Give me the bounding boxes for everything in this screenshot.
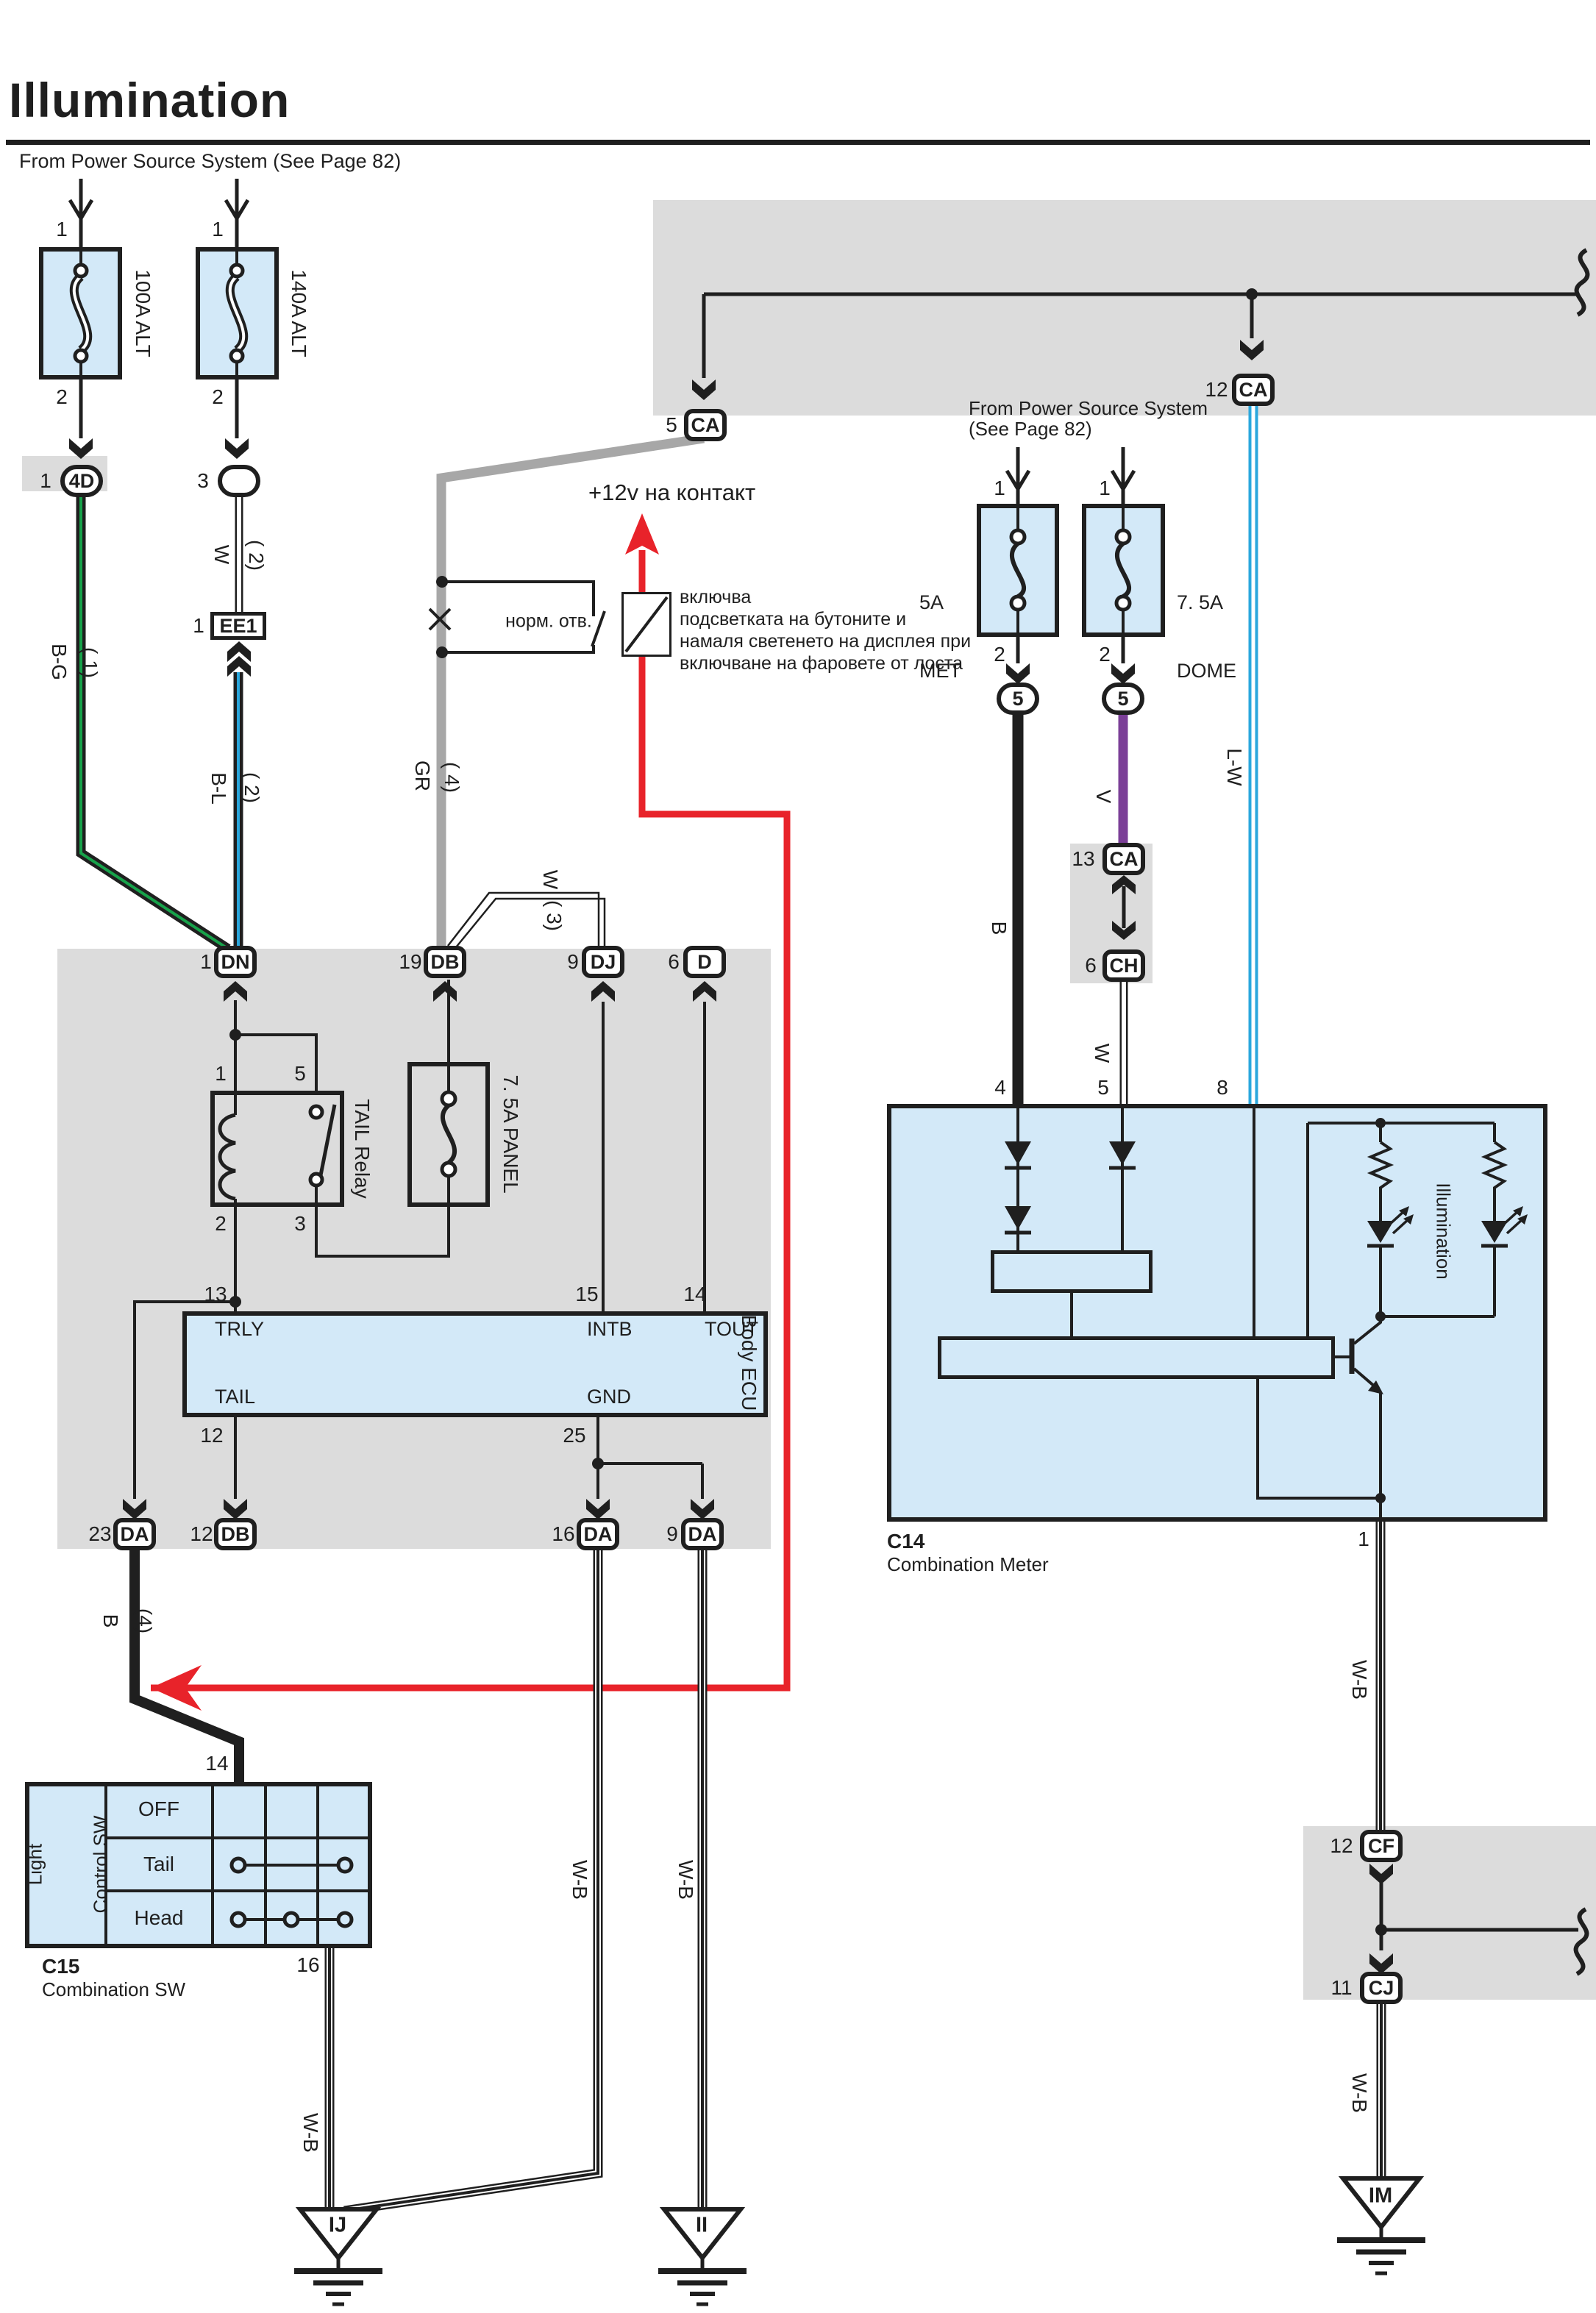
pin: 12 [1330, 1834, 1353, 1858]
wire-label: W-B [674, 1860, 697, 1900]
pin: 1 [193, 614, 204, 638]
ecu-gnd: GND [587, 1386, 631, 1408]
pin: 15 [575, 1283, 598, 1306]
connector-ca12-code: CA [1239, 379, 1268, 402]
connector-db-code: DB [431, 951, 460, 974]
c15-name: Combination SW [42, 1978, 185, 2001]
top-harness-line [704, 250, 1587, 378]
ecu-bottom-wiring [235, 1417, 702, 1499]
wire-label: W-B [1347, 1660, 1371, 1700]
ground-im-label: IM [1369, 2184, 1392, 2209]
pin: 8 [1216, 1076, 1228, 1100]
c15-side-line1: Light [24, 1816, 46, 1914]
pin: 2 [215, 1212, 227, 1236]
wire-label: W-B [299, 2113, 322, 2153]
c14-name: Combination Meter [887, 1553, 1049, 1576]
pin: 4 [994, 1076, 1006, 1100]
pin: 14 [683, 1283, 706, 1306]
connector-cf12: CF [1360, 1830, 1403, 1862]
fuse-dome-line1: 7. 5A [1177, 591, 1236, 614]
c14-id: C14 [887, 1530, 925, 1553]
power-note-line1: From Power Source System [969, 397, 1208, 420]
wire-label: ( 2) [240, 772, 263, 803]
connector-5-dome-code: 5 [1117, 688, 1128, 710]
annotation-line1: включва [680, 587, 751, 608]
fusible-link-100a-symbol [70, 179, 92, 438]
connector-ch6-code: CH [1110, 955, 1139, 977]
wire-label: (4) [132, 1608, 156, 1633]
pin: 25 [563, 1424, 585, 1447]
connector-dn: DN [214, 946, 257, 978]
fuse-dome-line2: DOME [1177, 660, 1236, 683]
pin: 1 [40, 469, 51, 493]
panel-fuse-label: 7. 5A PANEL [499, 1074, 522, 1193]
pin: 16 [552, 1522, 574, 1546]
wire-label: L-W [1222, 748, 1246, 785]
pin: 6 [668, 950, 680, 974]
c14-illumination-label: Illumination [1432, 1183, 1455, 1280]
connector-ca13: CA [1102, 843, 1145, 875]
fuse-panel-symbol [442, 980, 455, 1207]
pin: 12 [200, 1424, 223, 1447]
fuse-label-140a: 140A ALT [287, 269, 310, 357]
relay-wiring [135, 1000, 449, 1499]
connector-cf12-code: CF [1368, 1835, 1394, 1858]
wire-label: B-G [47, 644, 71, 680]
wire-label: ( 1) [78, 647, 101, 678]
connector-db: DB [424, 946, 466, 978]
wire-label: B [99, 1614, 122, 1628]
connector-da23-code: DA [121, 1523, 149, 1546]
connector-5-dome: 5 [1102, 683, 1144, 715]
subtitle: From Power Source System (See Page 82) [19, 150, 401, 173]
wiring-diagram-page: EE1 [0, 0, 1596, 2313]
pin: 3 [294, 1212, 306, 1236]
connector-ch6: CH [1102, 949, 1145, 982]
wire-gr [441, 438, 704, 947]
normally-open-label: норм. отв. [505, 611, 592, 632]
wire-label: B-L [207, 772, 230, 805]
connector-ca13-code: CA [1110, 848, 1139, 871]
c15-row-tail: Tail [143, 1853, 174, 1876]
pin: 12 [190, 1522, 213, 1546]
pin: 2 [56, 385, 68, 409]
connector-da16: DA [577, 1518, 619, 1550]
c15-row-off: OFF [138, 1797, 179, 1821]
cf-cj-wiring [1375, 1880, 1586, 1974]
c15-side-label: Light Control SW [0, 1816, 157, 1914]
relay-label: TAIL Relay [350, 1099, 374, 1198]
fuse-label-100a: 100A ALT [131, 269, 154, 357]
ground-ij-label: IJ [329, 2214, 346, 2238]
pin: 6 [1085, 954, 1097, 977]
pin: 23 [88, 1522, 111, 1546]
ground-ii-label: II [696, 2214, 708, 2238]
wire-bg [81, 496, 228, 949]
pin: 3 [197, 469, 209, 493]
pin: 1 [56, 218, 68, 241]
connector-4d-code: 4D [69, 470, 95, 493]
pin: 11 [1330, 1976, 1352, 2000]
pin: 12 [1205, 378, 1228, 402]
fuse-label-met: 5A MET [919, 546, 961, 728]
fuse-met-line2: MET [919, 660, 961, 683]
wire-label: W [1090, 1044, 1114, 1063]
pin: 1 [994, 477, 1005, 500]
connector-5-met-code: 5 [1012, 688, 1023, 710]
wire-w3 [448, 893, 605, 949]
c15-id: C15 [42, 1955, 79, 1978]
pin: 13 [204, 1283, 227, 1306]
fuse-dome-symbol [1112, 447, 1134, 663]
pin: 2 [1099, 643, 1111, 666]
pin: 14 [205, 1752, 228, 1775]
connector-ca5: CA [684, 409, 727, 441]
connector-da9-code: DA [688, 1523, 717, 1546]
pin: 1 [1099, 477, 1111, 500]
connector-cj11-code: CJ [1369, 1977, 1394, 2000]
pin: 2 [994, 643, 1005, 666]
wire-b4 [135, 1519, 239, 1782]
pin: 16 [296, 1953, 319, 1977]
wire-label: W-B [568, 1860, 591, 1900]
ee1-label: EE1 [219, 615, 257, 638]
ca13-ch6-link [1112, 875, 1136, 940]
pin: 1 [1358, 1528, 1369, 1551]
connector-db12-code: DB [221, 1523, 250, 1546]
pin: 1 [212, 218, 224, 241]
connector-ca5-code: CA [691, 414, 720, 437]
wire-label: ( 3) [542, 900, 566, 931]
connector-da9: DA [681, 1518, 724, 1550]
connector-db12: DB [214, 1518, 257, 1550]
power-note-line2: (See Page 82) [969, 418, 1092, 441]
wire-label: V [1091, 790, 1115, 804]
wire-label: B [987, 922, 1011, 935]
pin: 1 [200, 950, 212, 974]
wire-label: GR [410, 760, 434, 791]
ecu-trly: TRLY [215, 1318, 264, 1341]
pin: 13 [1072, 847, 1094, 871]
annotation-line2: подсветката на бутоните и [680, 609, 906, 630]
ecu-intb: INTB [587, 1318, 633, 1341]
wire-wb-16da [344, 1549, 598, 2211]
connector-dj: DJ [582, 946, 624, 978]
wire-label: ( 4) [440, 762, 463, 793]
fuse-met-line1: 5A [919, 591, 961, 614]
pin: 2 [212, 385, 224, 409]
connector-dj-code: DJ [591, 951, 616, 974]
c15-row-head: Head [135, 1906, 184, 1930]
connector-4d: 4D [60, 465, 103, 497]
wire-label: ( 2) [244, 540, 268, 571]
fusible-link-140a-symbol [226, 179, 248, 438]
title-rule [6, 140, 1590, 145]
connector-d-code: D [697, 951, 712, 974]
ecu-tail: TAIL [215, 1386, 255, 1408]
dimmer-diagonal [626, 597, 667, 652]
pin: 19 [399, 950, 421, 974]
wire-label: W [210, 545, 233, 564]
pin: 5 [294, 1062, 306, 1086]
connector-3 [218, 465, 260, 497]
wire-label: W-B [1347, 2073, 1371, 2113]
pin: 1 [215, 1062, 227, 1086]
connector-d: D [683, 946, 726, 978]
connector-cj11: CJ [1360, 1972, 1403, 2004]
pin: 9 [666, 1522, 678, 1546]
ecu-label: Body ECU [737, 1315, 760, 1411]
pin: 5 [1097, 1076, 1109, 1100]
ee1-junction-box: EE1 [210, 612, 266, 640]
connector-ca12: CA [1232, 374, 1275, 406]
plus12v-note: +12v на контакт [588, 480, 755, 506]
pin: 5 [666, 413, 677, 437]
page-title: Illumination [9, 72, 290, 128]
pin: 9 [567, 950, 579, 974]
c15-side-line2: Control SW [90, 1816, 113, 1914]
connector-da23: DA [113, 1518, 156, 1550]
fuse-met-symbol [1007, 447, 1029, 663]
wiring-layer [0, 0, 1596, 2313]
connector-dn-code: DN [221, 951, 250, 974]
wire-label: W [538, 870, 562, 889]
connector-da16-code: DA [584, 1523, 613, 1546]
c14-internals [1005, 1104, 1528, 1522]
connector-5-met: 5 [997, 683, 1039, 715]
fuse-label-dome: 7. 5A DOME [1177, 546, 1236, 728]
